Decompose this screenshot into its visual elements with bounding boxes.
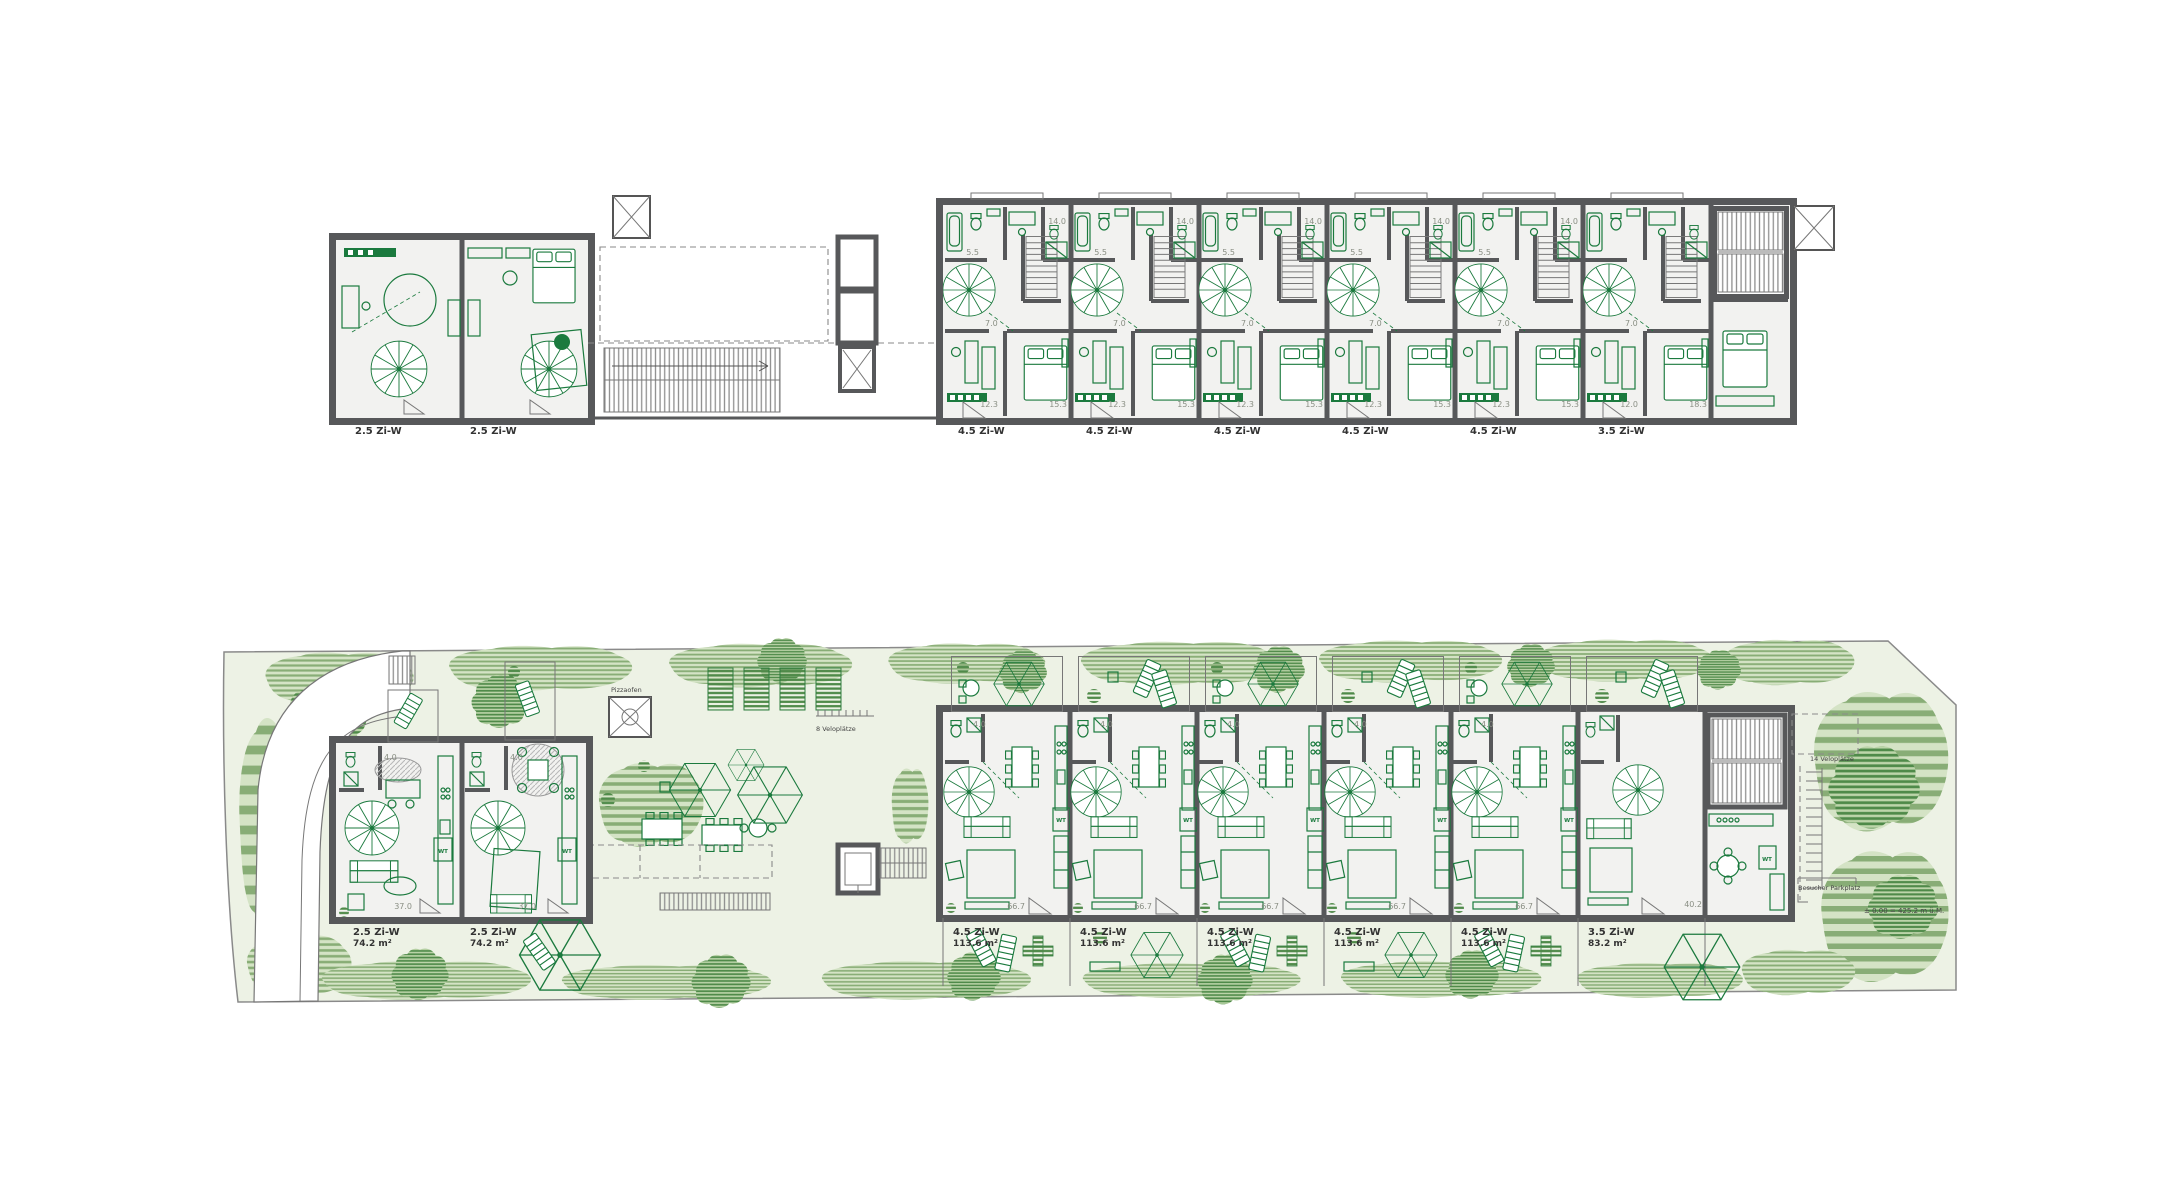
unit-label: 2.5 Zi-W — [470, 426, 517, 437]
unit-label: 4.5 Zi-W — [1080, 927, 1127, 938]
room-area: 12.3 — [1236, 400, 1254, 409]
site-plan: Pizzaofen 8 Veloplätze — [224, 638, 1956, 1008]
room-area: 4.0 — [1481, 720, 1494, 729]
unit-label: 4.5 Zi-W — [1334, 927, 1381, 938]
unit-label: 3.5 Zi-W — [1598, 426, 1645, 437]
room-area: 4.0 — [1227, 720, 1240, 729]
bed-icon — [1723, 331, 1767, 387]
entry-stairs — [660, 893, 770, 910]
unit-area: 83.2 m² — [1588, 939, 1627, 949]
spiral-stair-icon — [345, 801, 399, 855]
room-area: 5.5 — [966, 248, 979, 257]
room-area: 15.3 — [1049, 400, 1067, 409]
room-area: 4.0 — [1354, 720, 1367, 729]
room-area: 12.3 — [1108, 400, 1126, 409]
washer-tower-label: WT — [1056, 818, 1066, 824]
room-area: 7.0 — [985, 319, 998, 328]
room-area: 5.5 — [1350, 248, 1363, 257]
room-area: 15.3 — [1561, 400, 1579, 409]
washer-tower-label: WT — [1310, 818, 1320, 824]
bike-14-label: 14 Veloplätze — [1810, 755, 1854, 763]
elevator-shaft — [838, 237, 876, 391]
spiral-stair-icon — [371, 341, 427, 397]
washer-tower-label: WT — [1437, 818, 1447, 824]
entry-stairs — [389, 656, 415, 684]
unit-label: 4.5 Zi-W — [1342, 426, 1389, 437]
room-area: 12.3 — [980, 400, 998, 409]
unit-label: 4.5 Zi-W — [1086, 426, 1133, 437]
room-area: 4.0 — [510, 753, 523, 762]
washer-tower-label: WT — [438, 849, 448, 855]
unit-label: 4.5 Zi-W — [953, 927, 1000, 938]
room-area: 5.5 — [1478, 248, 1491, 257]
unit-label: 4.5 Zi-W — [1207, 927, 1254, 938]
unit-label: 4.5 Zi-W — [958, 426, 1005, 437]
room-area: 5.5 — [1222, 248, 1235, 257]
room-area: 66.7 — [1261, 902, 1279, 911]
room-area: 4.0 — [384, 753, 397, 762]
room-area: 12.0 — [1620, 400, 1638, 409]
washer-tower-label: WT — [562, 849, 572, 855]
spiral-stair-icon — [1613, 765, 1663, 815]
room-area: 7.0 — [1113, 319, 1126, 328]
bed-icon — [533, 249, 575, 303]
roof-box — [1794, 206, 1834, 250]
unit-label: 3.5 Zi-W — [1588, 927, 1635, 938]
room-area: 14.0 — [1560, 217, 1578, 226]
upper-floor-plan: 2.5 Zi-W 2.5 Zi-W — [333, 193, 1835, 437]
room-area: 7.0 — [1241, 319, 1254, 328]
room-area: 66.7 — [1134, 902, 1152, 911]
walkway — [588, 237, 943, 418]
room-area: 12.3 — [1364, 400, 1382, 409]
room-area: 12.3 — [1492, 400, 1510, 409]
unit-label: 4.5 Zi-W — [1214, 426, 1261, 437]
unit-area: 74.2 m² — [470, 939, 509, 949]
room-area: 18.3 — [1689, 400, 1707, 409]
room-area: 5.5 — [1094, 248, 1107, 257]
room-area: 4.0 — [1100, 720, 1113, 729]
unit-area: 113.6 m² — [1207, 939, 1252, 949]
room-area: 15.3 — [1433, 400, 1451, 409]
architectural-drawing: Pizzaofen 8 Veloplätze — [0, 0, 2167, 1200]
room-area: 40.2 — [1684, 900, 1702, 909]
unit-label: 2.5 Zi-W — [470, 927, 517, 938]
unit-area: 113.6 m² — [1334, 939, 1379, 949]
room-area: 66.7 — [1388, 902, 1406, 911]
unit-label: 2.5 Zi-W — [355, 426, 402, 437]
washer-tower-label: WT — [1183, 818, 1193, 824]
unit-area: 74.2 m² — [353, 939, 392, 949]
visitor-parking-label: Besucher Parkplatz — [1798, 884, 1861, 892]
washer-tower-label: WT — [1564, 818, 1574, 824]
room-area: 7.0 — [1497, 319, 1510, 328]
unit-area: 113.6 m² — [953, 939, 998, 949]
room-area: 14.0 — [1432, 217, 1450, 226]
bike-8-label: 8 Veloplätze — [816, 725, 856, 733]
room-area: 4.0 — [973, 720, 986, 729]
room-area: 15.3 — [1305, 400, 1323, 409]
datum-label: ± 0.00 = 425.2 m ü.M. — [1864, 907, 1944, 915]
room-area: 66.7 — [1515, 902, 1533, 911]
lower-stairwell — [1708, 715, 1785, 807]
room-area: 7.0 — [1369, 319, 1382, 328]
unit-area: 113.6 m² — [1080, 939, 1125, 949]
upper-left-building: 2.5 Zi-W 2.5 Zi-W — [333, 234, 592, 437]
unit-area: 113.6 m² — [1461, 939, 1506, 949]
room-area: 15.3 — [1177, 400, 1195, 409]
upper-main-building: 5.5 14.0 7.0 12.3 15.3 5.5 14.0 7.0 12.3… — [940, 193, 1835, 437]
skylight-box — [613, 196, 650, 238]
floor-plan-svg: Pizzaofen 8 Veloplätze — [0, 0, 2167, 1200]
room-area: 37.0 — [394, 902, 412, 911]
room-area: 7.0 — [1625, 319, 1638, 328]
unit-label: 2.5 Zi-W — [353, 927, 400, 938]
room-area: 14.0 — [1048, 217, 1066, 226]
spiral-stair-icon — [471, 801, 525, 855]
pizza-oven-icon — [609, 697, 651, 737]
room-area: 37.0 — [518, 902, 536, 911]
unit-label: 4.5 Zi-W — [1461, 927, 1508, 938]
unit-label: 4.5 Zi-W — [1470, 426, 1517, 437]
spiral-stair-icon — [521, 341, 577, 397]
elevator — [838, 845, 878, 893]
washer-tower-label: WT — [1762, 857, 1772, 863]
room-area: 14.0 — [1304, 217, 1322, 226]
room-area: 14.0 — [1176, 217, 1194, 226]
room-area: 66.7 — [1007, 902, 1025, 911]
pizza-oven-label: Pizzaofen — [611, 686, 642, 694]
